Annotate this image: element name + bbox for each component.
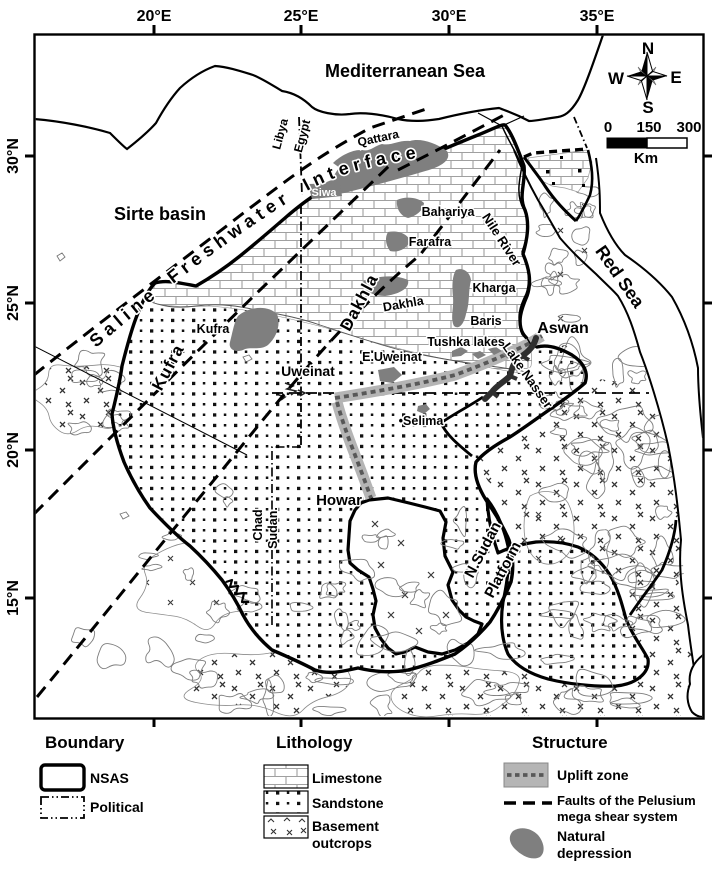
svg-text:Political: Political	[90, 799, 144, 815]
svg-text:Sudan.: Sudan.	[266, 507, 280, 549]
svg-text:15°N: 15°N	[5, 580, 22, 616]
svg-text:30°N: 30°N	[5, 138, 22, 174]
svg-text:E.Uweinat: E.Uweinat	[362, 350, 423, 364]
svg-text:mega shear system: mega shear system	[557, 809, 678, 824]
svg-text:Tushka lakes: Tushka lakes	[427, 335, 505, 349]
svg-text:Farafra: Farafra	[409, 235, 452, 249]
svg-text:•Selima: •Selima	[399, 414, 445, 428]
svg-text:Sirte basin: Sirte basin	[114, 204, 206, 224]
svg-text:Aswan: Aswan	[537, 320, 589, 337]
svg-text:Lithology: Lithology	[276, 733, 353, 752]
svg-text:300: 300	[676, 119, 701, 136]
svg-text:W: W	[608, 69, 625, 88]
svg-text:25°N: 25°N	[5, 285, 22, 321]
svg-text:Natural: Natural	[557, 828, 605, 844]
svg-text:Bahariya: Bahariya	[422, 205, 476, 219]
svg-text:20°N: 20°N	[5, 432, 22, 468]
svg-text:Kufra: Kufra	[197, 322, 231, 336]
svg-text:Km: Km	[634, 150, 658, 167]
svg-text:NSAS: NSAS	[90, 770, 129, 786]
svg-text:Sandstone: Sandstone	[312, 795, 384, 811]
svg-text:30°E: 30°E	[432, 8, 467, 25]
svg-text:Siwa: Siwa	[311, 187, 337, 199]
svg-text:Limestone: Limestone	[312, 770, 382, 786]
svg-text:0: 0	[604, 119, 612, 136]
svg-text:depression: depression	[557, 845, 632, 861]
svg-text:150: 150	[636, 119, 661, 136]
svg-text:Basement: Basement	[312, 818, 379, 834]
svg-text:20°E: 20°E	[137, 8, 172, 25]
svg-text:Uweinat: Uweinat	[281, 363, 335, 379]
svg-text:Baris: Baris	[470, 314, 501, 328]
svg-text:Mediterranean Sea: Mediterranean Sea	[325, 61, 486, 81]
svg-text:Chad: Chad	[251, 509, 265, 540]
svg-text:Uplift zone: Uplift zone	[557, 767, 629, 783]
svg-text:Kharga: Kharga	[472, 281, 516, 295]
svg-text:S: S	[642, 98, 653, 117]
svg-text:Howar: Howar	[316, 492, 362, 509]
svg-text:E: E	[670, 68, 681, 87]
svg-text:Boundary: Boundary	[45, 733, 125, 752]
svg-text:outcrops: outcrops	[312, 835, 372, 851]
svg-text:Structure: Structure	[532, 733, 608, 752]
svg-text:25°E: 25°E	[284, 8, 319, 25]
svg-text:Faults of the Pelusium: Faults of the Pelusium	[557, 793, 696, 808]
svg-text:N: N	[642, 39, 654, 58]
svg-text:35°E: 35°E	[580, 8, 615, 25]
